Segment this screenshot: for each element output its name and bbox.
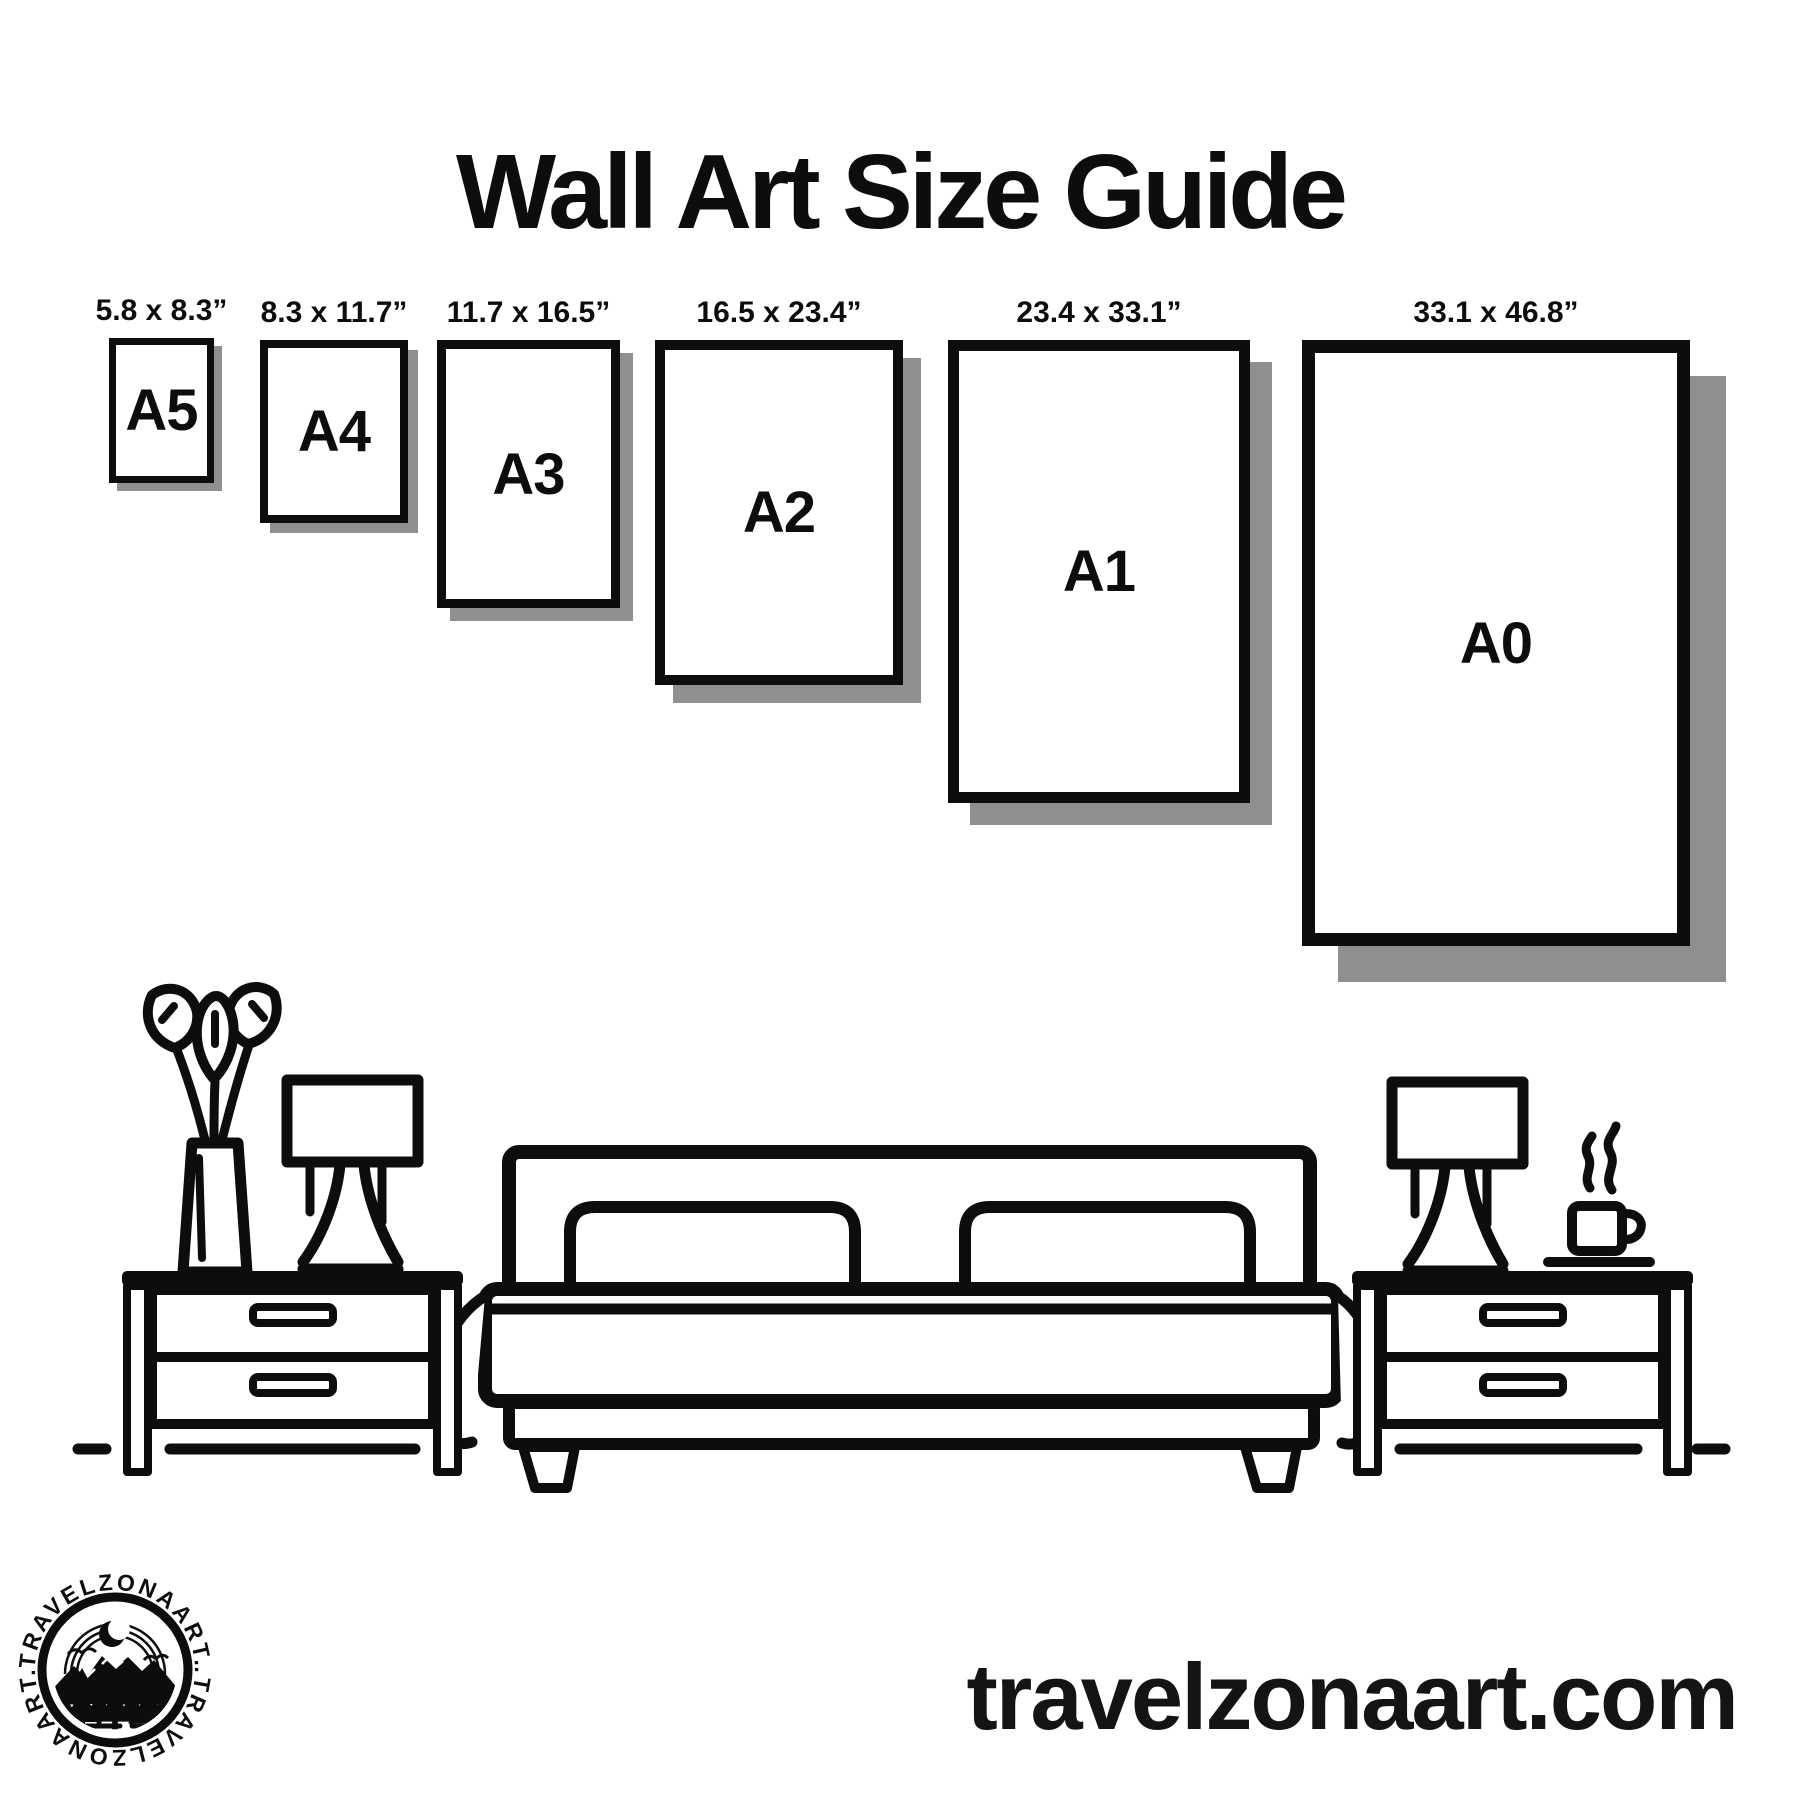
frame-letter-a2: A2 [743,479,815,546]
brand-logo-badge: TRAVELZONAART. .TRAVELZONAART. [2,1554,232,1784]
lamp-icon [1392,1082,1523,1271]
size-label-a4: 8.3 x 11.7” [261,296,408,330]
frame-letter-a0: A0 [1460,610,1532,677]
size-label-a0: 33.1 x 46.8” [1413,296,1578,330]
paper-frame-a3: A3 [437,340,620,608]
frame-letter-a3: A3 [492,441,564,508]
website-url: travelzonaart.com [966,1650,1737,1744]
size-label-a2: 16.5 x 23.4” [696,296,861,330]
frame-letter-a1: A1 [1063,538,1135,605]
paper-frame-a2: A2 [655,340,903,685]
bed-icon [438,1152,1376,1488]
frame-letter-a4: A4 [298,398,370,465]
size-label-a1: 23.4 x 33.1” [1016,296,1181,330]
page-title: Wall Art Size Guide [0,137,1800,248]
lamp-icon [287,1080,418,1269]
nightstand-icon [1352,1271,1693,1472]
paper-frame-a4: A4 [260,340,408,523]
moon-icon [99,1618,130,1647]
bedroom-scene [60,960,1740,1500]
coffee-cup-icon [1548,1126,1650,1262]
plant-icon [148,987,277,1272]
wall-art-size-guide-poster: Wall Art Size Guide 5.8 x 8.3”A58.3 x 11… [0,0,1800,1800]
paper-frame-a5: A5 [109,338,214,483]
paper-frame-a0: A0 [1302,340,1690,946]
nightstand-icon [122,1271,463,1472]
size-label-a5: 5.8 x 8.3” [96,294,228,328]
size-label-a3: 11.7 x 16.5” [447,296,610,330]
frame-letter-a5: A5 [125,377,197,444]
paper-frame-a1: A1 [948,340,1250,803]
